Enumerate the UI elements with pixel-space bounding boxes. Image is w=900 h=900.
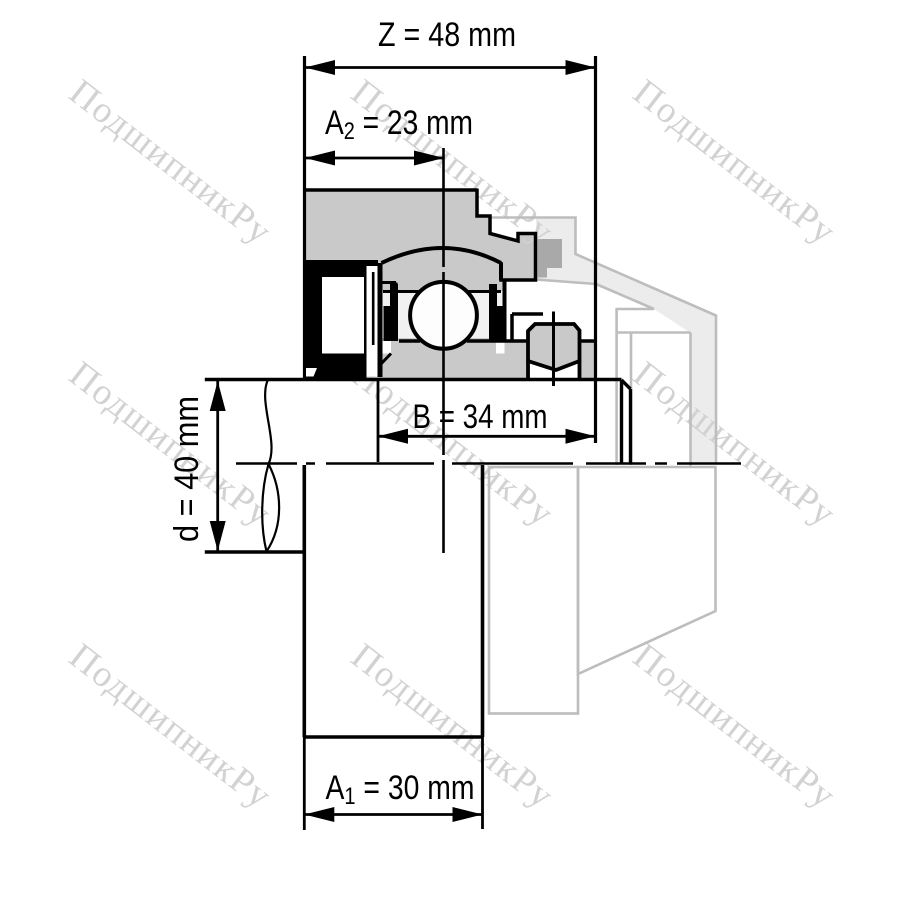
- svg-text:B = 34 mm: B = 34 mm: [413, 398, 548, 436]
- svg-text:d = 40 mm: d = 40 mm: [168, 396, 206, 542]
- svg-text:Z = 48 mm: Z = 48 mm: [378, 16, 516, 54]
